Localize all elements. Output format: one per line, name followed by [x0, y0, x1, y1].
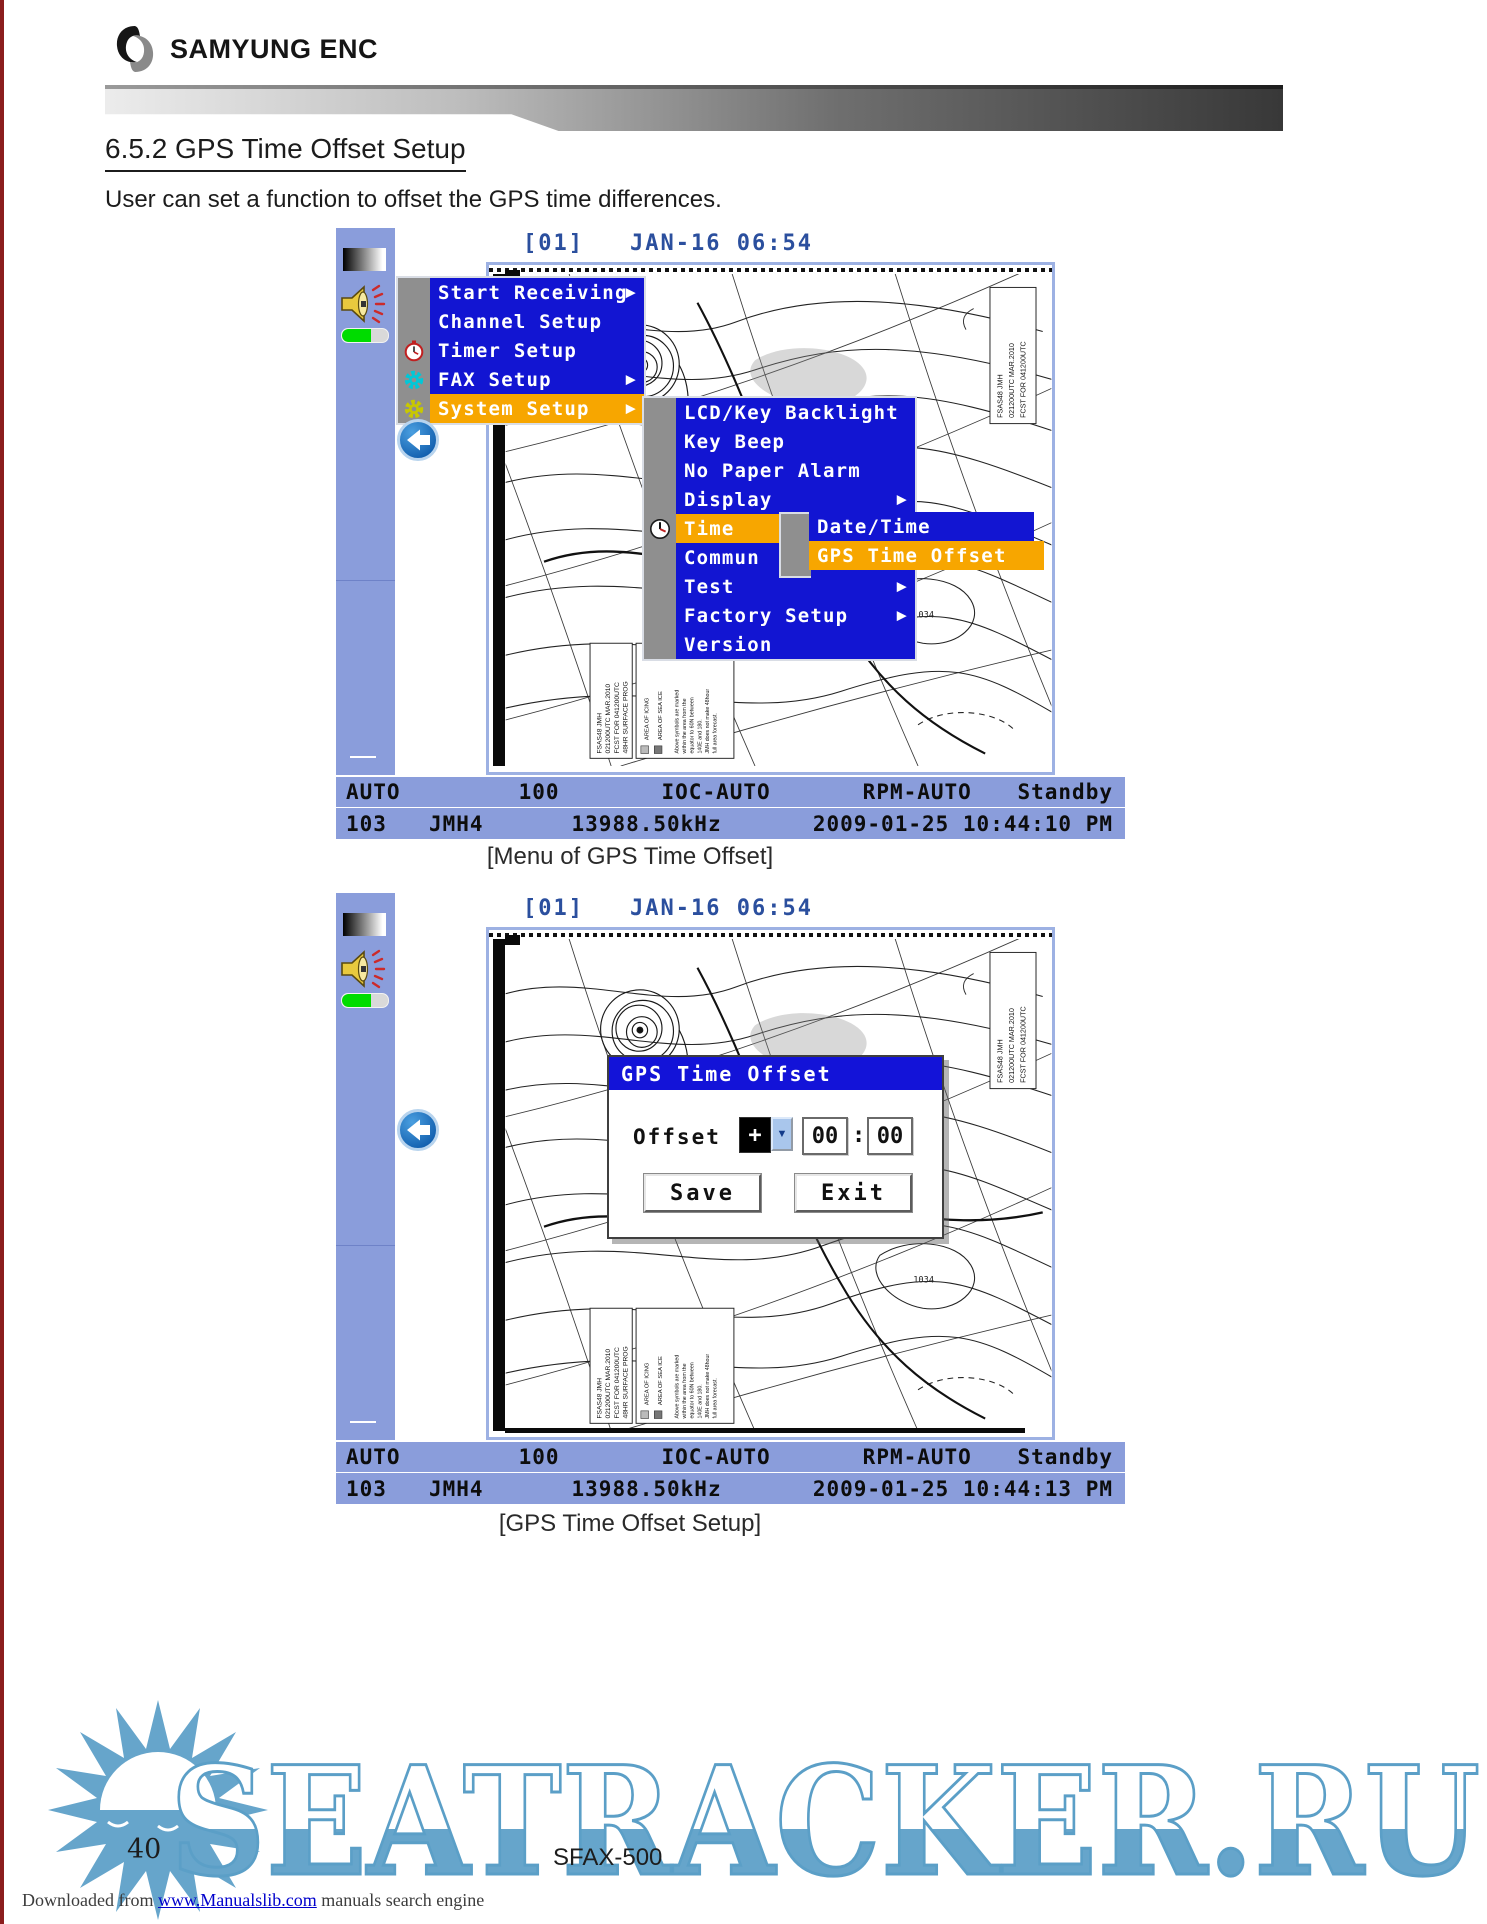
caption-screenshot2: [GPS Time Offset Setup] [499, 1510, 761, 1538]
status-bar-row2: 103 JMH4 13988.50kHz 2009-01-25 10:44:10… [336, 808, 1125, 839]
menu-icon-slot [644, 456, 676, 485]
fax-left-margin-bar [493, 939, 505, 1431]
submenu-arrow-icon: ▶ [897, 608, 908, 623]
status-station: JMH4 [429, 812, 484, 836]
fax-perforation [489, 268, 1052, 272]
menu-icon-slot [644, 485, 676, 514]
menu-icon-slot [398, 307, 430, 336]
screen-datetime: JAN-16 06:54 [630, 231, 813, 256]
submenu-item-date-time[interactable]: Date/Time [809, 512, 1034, 541]
submenu-arrow-icon: ▶ [626, 285, 637, 300]
menu-item-label: Timer Setup [438, 340, 577, 362]
submenu-item-key-beep[interactable]: Key Beep [644, 427, 915, 456]
hours-field[interactable]: 00 [802, 1117, 848, 1155]
status-state: Standby [1017, 780, 1113, 804]
brand-logo [112, 24, 158, 74]
menu-item-label: Date/Time [817, 516, 931, 538]
menu-item-label: Commun [684, 547, 760, 569]
header-rule-bar [105, 89, 1283, 131]
dialog-title-bar: GPS Time Offset [609, 1057, 942, 1090]
submenu-item-factory-setup[interactable]: Factory Setup ▶ [644, 601, 915, 630]
watermark-label: SEATRACKER.RU [170, 1742, 1480, 1902]
menu-item-label: Time [684, 518, 735, 540]
volume-level-bar [341, 328, 389, 343]
status-speed: 100 [519, 1445, 560, 1469]
contrast-gradient-indicator [343, 248, 386, 271]
screenshot-menu-of-gps-time-offset: [01] JAN-16 06:54 Start Receiving ▶ Chan… [336, 215, 1126, 840]
menu-icon-slot [644, 398, 676, 427]
status-frequency: 13988.50kHz [572, 812, 722, 836]
minutes-field[interactable]: 00 [867, 1117, 913, 1155]
manualslib-link[interactable]: www.Manualslib.com [158, 1890, 317, 1910]
menu-icon-slot [644, 630, 676, 659]
status-rpm: RPM-AUTO [863, 1445, 972, 1469]
menu-item-label: Channel Setup [438, 311, 602, 333]
sidebar-dash [350, 756, 376, 758]
volume-level-bar [341, 993, 389, 1008]
menu-item-label: Version [684, 634, 772, 656]
device-sidebar [336, 893, 395, 1440]
channel-indicator: [01] [523, 896, 584, 921]
submenu-item-lcd-key-backlight[interactable]: LCD/Key Backlight [644, 398, 915, 427]
screen-datetime: JAN-16 06:54 [630, 896, 813, 921]
screenshot-gps-time-offset-setup: [01] JAN-16 06:54 GPS Time Offset Offset… [336, 880, 1126, 1505]
status-datetime: 2009-01-25 10:44:13 PM [813, 1477, 1113, 1501]
sidebar-divider [336, 580, 395, 581]
speaker-icon [339, 947, 391, 991]
fax-bottom-rule [505, 1428, 1025, 1433]
menu-item-fax-setup[interactable]: FAX Setup ▶ [398, 365, 644, 394]
status-state: Standby [1017, 1445, 1113, 1469]
caption-screenshot1: [Menu of GPS Time Offset] [487, 843, 773, 871]
back-arrow-button[interactable] [396, 418, 440, 462]
submenu-strip [779, 512, 811, 578]
exit-button[interactable]: Exit [795, 1174, 912, 1212]
watermark-text: SEATRACKER.RU [168, 1742, 1487, 1902]
dropdown-arrow-icon[interactable]: ▼ [771, 1117, 793, 1151]
status-ioc: IOC-AUTO [662, 1445, 771, 1469]
menu-item-label: No Paper Alarm [684, 460, 861, 482]
downloaded-suffix: manuals search engine [321, 1890, 484, 1910]
save-button[interactable]: Save [644, 1174, 761, 1212]
brand-name: SAMYUNG ENC [170, 34, 378, 65]
submenu-arrow-icon: ▶ [897, 579, 908, 594]
menu-item-timer-setup[interactable]: Timer Setup [398, 336, 644, 365]
stopwatch-icon [398, 336, 430, 365]
status-datetime: 2009-01-25 10:44:10 PM [813, 812, 1113, 836]
submenu-item-display[interactable]: Display ▶ [644, 485, 915, 514]
menu-item-label: Display [684, 489, 772, 511]
status-channel: 103 [346, 812, 387, 836]
offset-label: Offset [633, 1125, 721, 1149]
status-speed: 100 [519, 780, 560, 804]
status-channel: 103 [346, 1477, 387, 1501]
speaker-icon [339, 282, 391, 326]
gear-icon [398, 365, 430, 394]
menu-item-label: Test [684, 576, 735, 598]
time-submenu: Date/Time GPS Time Offset [779, 512, 1049, 578]
header-rule-top [105, 85, 1283, 89]
channel-indicator: [01] [523, 231, 584, 256]
menu-item-channel-setup[interactable]: Channel Setup [398, 307, 644, 336]
submenu-arrow-icon: ▶ [897, 492, 908, 507]
device-sidebar [336, 228, 395, 775]
status-bar-row1: AUTO 100 IOC-AUTO RPM-AUTO Standby [336, 1440, 1125, 1472]
sidebar-dash [350, 1421, 376, 1423]
menu-item-label: System Setup [438, 398, 590, 420]
page-number: 40 [127, 1834, 161, 1865]
main-menu-popup: Start Receiving ▶ Channel Setup Timer Se… [396, 276, 646, 425]
menu-item-label: LCD/Key Backlight [684, 402, 899, 424]
status-mode: AUTO [346, 780, 401, 804]
screen-header: [01] JAN-16 06:54 [523, 231, 813, 256]
status-frequency: 13988.50kHz [572, 1477, 722, 1501]
menu-item-label: GPS Time Offset [817, 545, 1007, 567]
time-separator: : [852, 1123, 865, 1148]
menu-icon-slot [644, 572, 676, 601]
section-body-text: User can set a function to offset the GP… [105, 186, 722, 214]
status-station: JMH4 [429, 1477, 484, 1501]
status-rpm: RPM-AUTO [863, 780, 972, 804]
sign-value: + [739, 1117, 771, 1153]
downloaded-prefix: Downloaded from [22, 1890, 153, 1910]
menu-item-label: Start Receiving [438, 282, 628, 304]
fax-perforation [489, 933, 1052, 937]
menu-icon-slot [398, 278, 430, 307]
model-label: SFAX-500 [553, 1844, 662, 1872]
menu-icon-slot [644, 427, 676, 456]
status-bar-row2: 103 JMH4 13988.50kHz 2009-01-25 10:44:13… [336, 1473, 1125, 1504]
menu-item-label: Factory Setup [684, 605, 848, 627]
submenu-arrow-icon: ▶ [626, 401, 637, 416]
status-ioc: IOC-AUTO [662, 780, 771, 804]
manual-page: SAMYUNG ENC 6.5.2 GPS Time Offset Setup … [0, 0, 1487, 1924]
submenu-item-gps-time-offset[interactable]: GPS Time Offset [809, 541, 1044, 570]
menu-item-start-receiving[interactable]: Start Receiving ▶ [398, 278, 644, 307]
menu-icon-slot [644, 543, 676, 572]
menu-item-label: Key Beep [684, 431, 785, 453]
menu-item-label: FAX Setup [438, 369, 552, 391]
back-arrow-button[interactable] [396, 1108, 440, 1152]
dialog-title: GPS Time Offset [621, 1062, 832, 1086]
section-title: 6.5.2 GPS Time Offset Setup [105, 133, 466, 172]
contrast-gradient-indicator [343, 913, 386, 936]
status-mode: AUTO [346, 1445, 401, 1469]
clock-icon [644, 514, 676, 543]
submenu-item-no-paper-alarm[interactable]: No Paper Alarm [644, 456, 915, 485]
status-bar-row1: AUTO 100 IOC-AUTO RPM-AUTO Standby [336, 775, 1125, 807]
submenu-arrow-icon: ▶ [626, 372, 637, 387]
submenu-item-version[interactable]: Version [644, 630, 915, 659]
gps-time-offset-dialog: GPS Time Offset Offset + ▼ 00 : 00 Save … [607, 1055, 944, 1239]
menu-icon-slot [644, 601, 676, 630]
sidebar-divider [336, 1245, 395, 1246]
sign-dropdown[interactable]: + ▼ [739, 1117, 793, 1153]
downloaded-line: Downloaded from www.Manualslib.com manua… [22, 1890, 484, 1911]
screen-header: [01] JAN-16 06:54 [523, 896, 813, 921]
page-left-edge-stripe [0, 0, 4, 1924]
